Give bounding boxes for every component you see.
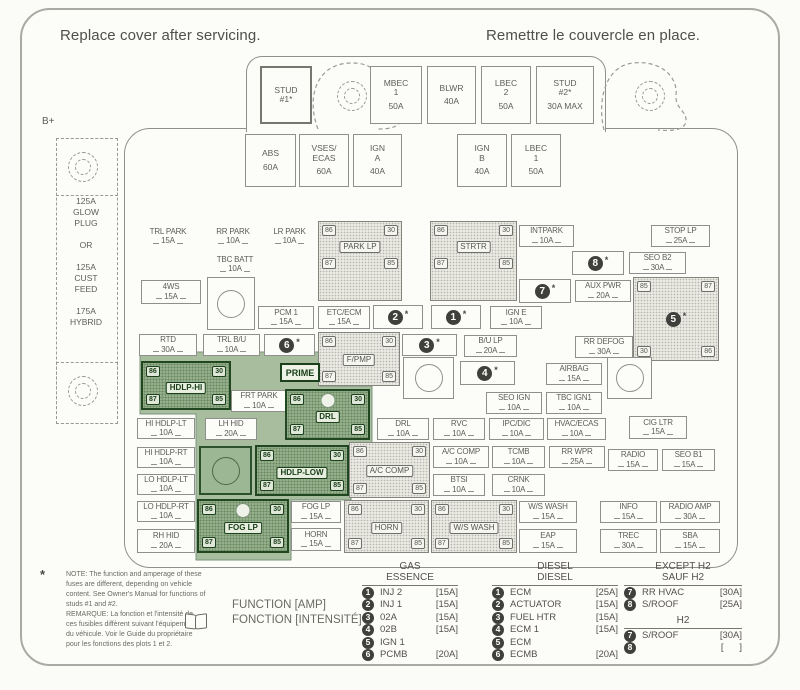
title-french: Remettre le couvercle en place.	[486, 27, 700, 44]
fuse-label: RR WPR	[561, 448, 592, 457]
breaker-socket	[403, 357, 454, 399]
fuse-amp: 15A	[299, 513, 333, 522]
relay-name-label: STRTR	[456, 241, 491, 253]
fuse-amp: 25A	[664, 237, 698, 246]
legend-item-amp: [15A]	[436, 599, 458, 610]
relay-number-circle: 6	[279, 338, 294, 353]
legend-header: GAS ESSENCE	[362, 561, 458, 586]
fuse-label: SEO B1	[675, 451, 703, 460]
relay-pin: 87	[290, 424, 304, 435]
fuse-amp-value: 20A	[484, 347, 498, 356]
legend-item-amp: [25A]	[596, 587, 618, 598]
relay-pin: 85	[637, 281, 651, 292]
fuse-amp: 15A	[673, 542, 707, 551]
fuse-amp: 10A	[442, 430, 476, 439]
relay-hdlp-hi: 86308785HDLP-HI	[141, 361, 231, 410]
fuse-amp-value: 20A	[159, 542, 173, 551]
screw-hole-icon	[642, 88, 658, 104]
relay-pin: 30	[499, 504, 513, 515]
fuse-rvc: RVC10A	[433, 418, 485, 440]
asterisk: *	[296, 337, 300, 347]
fuse-label: SBA	[682, 532, 697, 541]
fuse-stop-lp: STOP LP25A	[651, 225, 710, 247]
legend-item-name: S/ROOF	[642, 599, 720, 610]
fuse-label: LO HDLP-RT	[143, 503, 188, 512]
relay-pin: 85	[351, 424, 365, 435]
fuse-amp-value: 20A	[224, 430, 238, 439]
relay-pin: 86	[348, 504, 362, 515]
socket-circle-icon	[212, 457, 240, 485]
title-english: Replace cover after servicing.	[60, 27, 261, 44]
asterisk: *	[552, 283, 556, 293]
legend-gas: GAS ESSENCE1INJ 2[15A]2INJ 1[15A]302A[15…	[362, 561, 458, 661]
legend-number-circle: 7	[624, 630, 636, 642]
relay-pin: 87	[322, 258, 336, 269]
legend-item: 8[ ]	[624, 642, 742, 654]
fuse-box-diagram: Replace cover after servicing. Remettre …	[0, 0, 800, 690]
relay-pin: 30	[412, 446, 426, 457]
legend-item-amp: [15A]	[596, 599, 618, 610]
fuse-w-s-wash: W/S WASH15A	[519, 501, 577, 523]
relay-pin: 86	[701, 346, 715, 357]
fuse-amp: 30A	[641, 264, 675, 273]
fuse-amp: 10A	[502, 486, 536, 495]
relay-pin: 87	[322, 371, 336, 382]
fuse-hi-hdlp-rt: HI HDLP-RT10A	[137, 447, 195, 468]
fuse-rr-defog: RR DEFOG30A	[575, 336, 633, 358]
fuse-amp-value: 15A	[541, 513, 555, 522]
relay-pin: 86	[290, 394, 304, 405]
fuse-sba: SBA15A	[660, 529, 720, 553]
fuse-amp-value: 10A	[510, 430, 524, 439]
fuse-label: HI HDLP-RT	[145, 449, 188, 458]
fuse-amp: 20A	[474, 347, 508, 356]
relay-number-circle: 5	[666, 312, 681, 327]
fuse-label: CRNK	[508, 476, 530, 485]
fuse-label: TRL PARK	[150, 228, 187, 237]
fuse-label: CIG LTR	[643, 419, 673, 428]
fuse-label: VSES/ ECAS	[311, 144, 336, 163]
fuse-stud-1: STUD #1*	[260, 66, 312, 124]
fuse-amp: 15A	[269, 318, 303, 327]
legend-item: 7RR HVAC[30A]	[624, 587, 742, 599]
fuse-amp-value: 15A	[541, 542, 555, 551]
legend-item-amp: [30A]	[720, 630, 742, 641]
legend-number-circle: 8	[624, 642, 636, 654]
fuse-amp: 30A	[151, 346, 185, 355]
fuse-label: HVAC/ECAS	[555, 420, 599, 429]
fuse-amp-value: 10A	[507, 404, 521, 413]
relay-pin: 87	[146, 394, 160, 405]
legend-item: 302A[15A]	[362, 612, 458, 624]
note-asterisk: *	[40, 567, 45, 582]
fuse-amp-value: 10A	[512, 486, 526, 495]
fuse-label: ETC/ECM	[327, 309, 362, 318]
fuse-label: LH HID	[218, 420, 243, 429]
fuse-amp: 60A	[263, 163, 278, 173]
fuse-amp-value: 10A	[512, 458, 526, 467]
fuse-eap: EAP15A	[519, 529, 577, 553]
fuse-label: B/U LP	[478, 337, 502, 346]
relay-pin: 86	[146, 366, 160, 377]
relay-pin: 30	[384, 225, 398, 236]
relay-num-box-6: 6*	[264, 334, 315, 356]
legend-item-name: INJ 1	[380, 599, 436, 610]
fuse-amp-value: 30A	[683, 513, 697, 522]
note-english: NOTE: The function and amperage of these…	[66, 570, 210, 610]
fuse-etc-ecm: ETC/ECM15A	[318, 306, 370, 329]
fuse-amp: 15A	[641, 428, 675, 437]
fuse-amp-value: 10A	[540, 237, 554, 246]
legend-item-name: RR HVAC	[642, 587, 720, 598]
relay-fog-lp: 86308785FOG LP	[197, 499, 289, 553]
legend-item: 8S/ROOF[25A]	[624, 599, 742, 611]
fuse-amp-value: 10A	[283, 237, 297, 246]
fuse-label: LO HDLP-LT	[144, 476, 188, 485]
breaker-socket	[199, 446, 252, 495]
fuse-amp: 10A	[502, 458, 536, 467]
legend-item-amp: [15A]	[436, 624, 458, 635]
fuse-amp: 10A	[149, 485, 183, 494]
prime-label: PRIME	[280, 363, 320, 382]
fuse-label: RH HID	[153, 532, 179, 541]
fuse-a-c-comp: A/C COMP10A	[433, 446, 489, 468]
fuse-amp: 10A	[215, 346, 249, 355]
fuse-label: IGN A	[370, 144, 385, 163]
asterisk: *	[494, 365, 498, 375]
bolt-icon	[75, 159, 91, 175]
relay-number-circle: 3	[419, 338, 434, 353]
fuse-amp-value: 30A	[651, 264, 665, 273]
mounting-hole-icon	[236, 503, 251, 518]
fuse-cig-ltr: CIG LTR15A	[629, 416, 687, 439]
fuse-label: RR DEFOG	[584, 338, 625, 347]
fuse-amp-value: 15A	[161, 237, 175, 246]
fuse-amp: 10A	[149, 458, 183, 467]
legend-number-circle: 3	[492, 612, 504, 624]
fuse-amp-value: 10A	[454, 458, 468, 467]
fuse-label: LR PARK	[273, 228, 305, 237]
relay-pin: 30	[499, 225, 513, 236]
fuse-stud-2: STUD #2*30A MAX	[536, 66, 594, 124]
fuse-amp: 25A	[560, 458, 594, 467]
fuse-amp: 10A	[530, 237, 564, 246]
fuse-label: INTPARK	[530, 227, 563, 236]
fuse-label: FOG LP	[302, 503, 330, 512]
fuse-amp: 20A	[149, 542, 183, 551]
fuse-lh-hid: LH HID20A	[205, 418, 257, 440]
fuse-amp: 15A	[531, 542, 565, 551]
fuse-label: RTD	[160, 336, 176, 345]
fuse-label: RVC	[451, 420, 467, 429]
fuse-label: IGN B	[474, 144, 489, 163]
fuse-amp-value: 25A	[674, 237, 688, 246]
fuse-label: IPC/DIC	[503, 420, 531, 429]
fuse-amp-value: 15A	[309, 540, 323, 549]
screw-hole-icon	[344, 88, 360, 104]
fuse-crnk: CRNK10A	[492, 474, 545, 496]
legend-item-name: ECMB	[510, 649, 596, 660]
asterisk: *	[605, 255, 609, 265]
fuse-amp: 10A	[557, 404, 591, 413]
fuse-btsi: BTSI10A	[433, 474, 485, 496]
fuse-label: AIRBAG	[559, 365, 588, 374]
legend-number-circle: 5	[362, 637, 374, 649]
fuse-seo-ign: SEO IGN10A	[486, 392, 542, 414]
legend-item-name: ECM 1	[510, 624, 596, 635]
fuse-amp: 50A	[388, 102, 403, 112]
fuse-amp: 50A	[498, 102, 513, 112]
relay-f-pmp: 86308785F/PMP	[318, 332, 400, 386]
fuse-lr-park: LR PARK10A	[261, 226, 318, 247]
legend-diesel: DIESEL DIESEL1ECM[25A]2ACTUATOR[15A]3FUE…	[492, 561, 618, 661]
relay-pin: 85	[411, 538, 425, 549]
function-amp-caption: FUNCTION [AMP] FONCTION [INTENSITÉ]	[232, 598, 362, 628]
fuse-pcm-1: PCM 115A	[258, 306, 314, 329]
fuse-amp-value: 30A	[597, 348, 611, 357]
fuse-amp: 20A	[586, 292, 620, 301]
legend-item: 4ECM 1[15A]	[492, 624, 618, 636]
fuse-amp: 40A	[474, 167, 489, 177]
relay-pin: 85	[499, 258, 513, 269]
relay-pin: 85	[384, 258, 398, 269]
relay-pin: 86	[322, 336, 336, 347]
fuse-hi-hdlp-lt: HI HDLP-LT10A	[137, 418, 195, 439]
fuse-amp-value: 20A	[596, 292, 610, 301]
fuse-amp-value: 15A	[567, 375, 581, 384]
relay-pin: 85	[382, 371, 396, 382]
relay-pin: 86	[353, 446, 367, 457]
fuse-amp: 10A	[149, 429, 183, 438]
fuse-amp-value: 10A	[567, 404, 581, 413]
relay-name-label: FOG LP	[224, 522, 262, 534]
fuse-label: MBEC 1	[384, 79, 409, 98]
relay-num-box-7: 7*	[519, 279, 571, 303]
relay-name-label: W/S WASH	[449, 522, 498, 534]
legend-item-amp: [15A]	[436, 587, 458, 598]
fuse-trl-b-u: TRL B/U10A	[203, 334, 260, 356]
fuse-label: BLWR	[440, 84, 464, 94]
fuse-label: STUD #2*	[553, 79, 576, 98]
asterisk: *	[436, 337, 440, 347]
fuse-label: HI HDLP-LT	[146, 420, 187, 429]
legend-header: EXCEPT H2 SAUF H2	[624, 561, 742, 586]
relay-num-box-8: 8*	[572, 251, 624, 275]
legend-item-amp: [20A]	[436, 649, 458, 660]
fuse-amp: 10A	[273, 237, 307, 246]
fuse-amp-value: 10A	[396, 430, 410, 439]
fuse-b-u-lp: B/U LP20A	[464, 335, 517, 357]
legend-item: 2ACTUATOR[15A]	[492, 599, 618, 611]
relay-pin: 87	[434, 258, 448, 269]
fuse-trec: TREC30A	[600, 529, 657, 553]
asterisk: *	[683, 311, 687, 321]
legend-number-circle: 1	[362, 587, 374, 599]
relay-pin: 86	[435, 504, 449, 515]
fuse-rh-hid: RH HID20A	[137, 529, 195, 553]
legend-item-amp: [25A]	[720, 599, 742, 610]
fuse-amp: 15A	[154, 293, 188, 302]
fuse-amp-value: 10A	[570, 430, 584, 439]
fuse-label: RADIO AMP	[669, 503, 712, 512]
fuse-aux-pwr: AUX PWR20A	[575, 280, 631, 302]
fuse-lo-hdlp-rt: LO HDLP-RT10A	[137, 501, 195, 522]
relay-name-label: F/PMP	[343, 354, 375, 366]
relay-pin: 30	[351, 394, 365, 405]
relay-pin: 85	[412, 483, 426, 494]
relay-pin: 86	[434, 225, 448, 236]
fuse-amp: 10A	[218, 265, 252, 274]
fuse-blwr: BLWR40A	[427, 66, 476, 124]
fuse-lbec-1: LBEC 150A	[511, 134, 561, 187]
fuse-amp: 15A	[299, 540, 333, 549]
fuse-label: SEO IGN	[498, 394, 530, 403]
legend-item: 6ECMB[20A]	[492, 649, 618, 661]
fuse-label: TCMB	[508, 448, 530, 457]
relay-horn: 86308785HORN	[344, 500, 429, 553]
relay-num-box-3: 3*	[402, 334, 457, 356]
legend-item-amp: [15A]	[596, 624, 618, 635]
legend-number-circle: 8	[624, 599, 636, 611]
fuse-intpark: INTPARK10A	[519, 225, 574, 247]
fuse-amp: 15A	[616, 461, 650, 470]
fuse-amp: 10A	[500, 430, 534, 439]
relay-number-circle: 1	[446, 310, 461, 325]
fuse-label: HORN	[305, 531, 328, 540]
breaker-socket	[607, 357, 652, 399]
fuse-label: BTSI	[451, 476, 468, 485]
fuse-amp-value: 10A	[159, 429, 173, 438]
legend-number-circle: 6	[362, 649, 374, 661]
fuse-amp-value: 10A	[159, 458, 173, 467]
relay-drl: 86308785DRL	[285, 389, 370, 440]
fuse-amp: 40A	[370, 167, 385, 177]
fuse-label: DRL	[395, 420, 410, 429]
fuse-amp: 10A	[386, 430, 420, 439]
fuse-label: TBC IGN1	[556, 394, 591, 403]
fuse-seo-b2: SEO B230A	[629, 252, 686, 274]
fuse-horn: HORN15A	[291, 528, 341, 551]
owners-manual-icon	[184, 613, 208, 630]
fuse-amp-value: 30A	[622, 542, 636, 551]
mounting-hole-icon	[320, 393, 335, 408]
legend-item: 402B[15A]	[362, 624, 458, 636]
relay-pin: 87	[353, 483, 367, 494]
fuse-label: W/S WASH	[528, 503, 567, 512]
bolt-icon	[75, 383, 91, 399]
fuse-amp-value: 15A	[651, 428, 665, 437]
relay-pin: 86	[322, 225, 336, 236]
legend-item: 3FUEL HTR[15A]	[492, 612, 618, 624]
relay-a-c-comp: 86308785A/C COMP	[349, 442, 430, 498]
legend-item: 6PCMB[20A]	[362, 649, 458, 661]
fuse-drl: DRL10A	[377, 418, 429, 440]
legend-except-h2: EXCEPT H2 SAUF H27RR HVAC[30A]8S/ROOF[25…	[624, 561, 742, 654]
relay-name-label: DRL	[315, 411, 339, 423]
socket-circle-icon	[415, 364, 443, 392]
fuse-label: 4WS	[163, 283, 180, 292]
legend-number-circle: 6	[492, 649, 504, 661]
relay-pin: 87	[701, 281, 715, 292]
relay-pin: 85	[499, 538, 513, 549]
legend-item-amp: [15A]	[596, 612, 618, 623]
fuse-amp-value: 30A	[161, 346, 175, 355]
fuse-ign-a: IGN A40A	[353, 134, 402, 187]
relay-pin: 30	[411, 504, 425, 515]
legend-item: 1ECM[25A]	[492, 587, 618, 599]
legend-item-name: IGN 1	[380, 637, 458, 648]
fuse-amp-value: 10A	[225, 346, 239, 355]
legend-number-circle: 2	[492, 599, 504, 611]
fuse-amp: 50A	[528, 167, 543, 177]
legend-item-name: ECM	[510, 587, 596, 598]
breaker-socket	[207, 277, 255, 330]
fuse-info: INFO15A	[600, 501, 657, 523]
legend-number-circle: 4	[362, 624, 374, 636]
relay-name-label: HDLP-LOW	[276, 467, 327, 479]
fuse-tbc-batt: TBC BATT10A	[203, 254, 267, 275]
fuse-ign-e: IGN E10A	[490, 306, 542, 329]
fuse-amp: 10A	[149, 512, 183, 521]
relay-park-lp: 86308785PARK LP	[318, 221, 402, 301]
fuse-label: RR PARK	[216, 228, 250, 237]
fuse-amp-value: 15A	[683, 542, 697, 551]
legend-item-name: INJ 2	[380, 587, 436, 598]
relay-number-circle: 8	[588, 256, 603, 271]
relay-pin: 30	[382, 336, 396, 347]
fuse-tbc-ign1: TBC IGN110A	[546, 392, 602, 414]
fuse-amp: 15A	[672, 461, 706, 470]
fuse-hvac-ecas: HVAC/ECAS10A	[547, 418, 606, 440]
relay-pin: 85	[270, 537, 284, 548]
relay-pin: 85	[212, 394, 226, 405]
fuse-amp: 10A	[216, 237, 250, 246]
fuse-label: STUD #1*	[274, 86, 297, 105]
legend-number-circle: 7	[624, 587, 636, 599]
legend-item: 2INJ 1[15A]	[362, 599, 458, 611]
fuse-amp: 15A	[151, 237, 185, 246]
relay-pin: 30	[270, 504, 284, 515]
fuse-amp: 40A	[444, 97, 459, 107]
fuse-amp: 10A	[242, 402, 276, 411]
fuse-amp-value: 15A	[682, 461, 696, 470]
relay-pin: 87	[348, 538, 362, 549]
fuse-amp-value: 10A	[159, 485, 173, 494]
legend-item-name: S/ROOF	[642, 630, 720, 641]
legend-item-name: PCMB	[380, 649, 436, 660]
fuse-amp: 10A	[444, 458, 478, 467]
fuse-vses-ecas: VSES/ ECAS60A	[299, 134, 349, 187]
legend-number-circle: 3	[362, 612, 374, 624]
fuse-trl-park: TRL PARK15A	[138, 226, 198, 247]
relay-num-box-2: 2*	[373, 305, 423, 329]
fuse-amp: 30A	[587, 348, 621, 357]
legend-item: 1INJ 2[15A]	[362, 587, 458, 599]
legend-item-name: FUEL HTR	[510, 612, 596, 623]
relay-pin: 87	[260, 480, 274, 491]
fuse-label: STOP LP	[664, 227, 696, 236]
relay-w-s-wash: 86308785W/S WASH	[431, 500, 517, 553]
legend-item: 5ECM	[492, 637, 618, 649]
fuse-label: TREC	[618, 532, 639, 541]
relay-name-label: A/C COMP	[366, 465, 414, 477]
relay-pin: 30	[637, 346, 651, 357]
asterisk: *	[405, 309, 409, 319]
legend-number-circle: 2	[362, 599, 374, 611]
fuse-label: IGN E	[506, 309, 527, 318]
legend-number-circle: 1	[492, 587, 504, 599]
fuse-lo-hdlp-lt: LO HDLP-LT10A	[137, 474, 195, 495]
